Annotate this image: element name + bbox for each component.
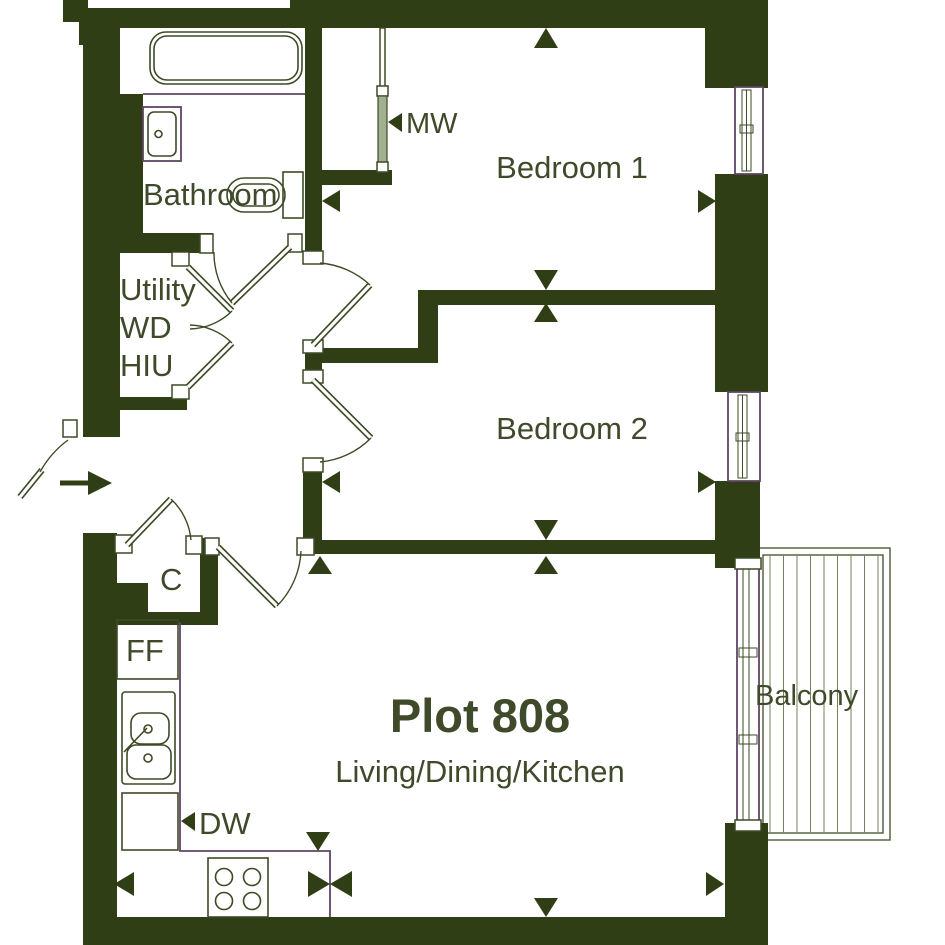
cupboard-label: C [160, 562, 182, 597]
wall-bedroom2-alcove-top [322, 348, 438, 363]
balcony-door-top-cap [735, 558, 761, 569]
floorplan: Bathroom Utility WD HIU MW Bedroom 1 Bed… [0, 0, 945, 945]
utility-wd-label: WD [120, 310, 172, 345]
wall-bathroom-duct [120, 94, 143, 240]
bathtub-icon [150, 32, 302, 84]
wall-bottom [83, 917, 768, 945]
fridge-freezer-label: FF [126, 633, 164, 668]
utility-hiu-label: HIU [120, 348, 173, 383]
arrow-down-icon [534, 270, 558, 290]
balcony-label: Balcony [755, 680, 859, 712]
wall-bedroom-divider [418, 290, 716, 305]
wall-hall-lower [303, 471, 322, 541]
arrow-right-icon [698, 190, 716, 213]
hob-icon [208, 858, 268, 917]
plot-title: Plot 808 [390, 689, 570, 742]
wall-left-upper [83, 8, 120, 437]
sink-icon [122, 692, 175, 784]
arrow-up-icon [534, 28, 558, 48]
balcony-door-bottom-cap [735, 820, 761, 831]
arrow-left-icon [322, 190, 340, 212]
wall-hall-stub [305, 351, 322, 372]
arrow-down-icon [534, 520, 558, 540]
entrance-door [20, 440, 68, 497]
arrow-up-icon [534, 303, 558, 322]
arrow-up-icon [534, 556, 558, 574]
wall-right-top-block [705, 0, 768, 88]
arrow-left-icon [330, 871, 352, 897]
living-label: Living/Dining/Kitchen [335, 754, 625, 789]
cupboard-door [127, 499, 191, 545]
bedroom1-door [313, 263, 370, 345]
utility-label: Utility [120, 272, 196, 307]
arrow-right-icon [698, 471, 716, 493]
kitchen-counter-line [180, 622, 330, 917]
bedroom2-door [313, 380, 371, 462]
wall-bedroom2-bottom [300, 540, 723, 554]
washbasin-icon [143, 107, 181, 161]
wall-bathroom-utility-divider [110, 233, 213, 253]
bathroom-door [214, 247, 290, 303]
dishwasher-unit [122, 793, 178, 850]
living-room-door [218, 547, 301, 606]
entrance-jamb [63, 420, 77, 437]
dw-pointer-icon [181, 812, 195, 831]
arrow-right-icon [706, 872, 724, 896]
wall-left-lower [83, 533, 117, 917]
bedroom1-window [735, 87, 763, 174]
utility-door-bottom [188, 325, 232, 387]
wall-right-mid-block2 [715, 481, 760, 568]
arrow-down-icon [306, 832, 330, 851]
dishwasher-label: DW [199, 806, 251, 841]
wall-top-right [290, 0, 730, 28]
arrow-left-icon [322, 471, 340, 493]
bedroom2-window [728, 392, 760, 481]
arrow-right-icon [308, 871, 330, 897]
wall-bathroom-right [305, 25, 322, 253]
bathroom-label: Bathroom [143, 177, 277, 212]
bedroom2-label: Bedroom 2 [496, 411, 648, 446]
mw-pointer-icon [388, 113, 402, 132]
arrow-down-icon [534, 898, 558, 917]
arrow-up-icon [308, 556, 332, 574]
mw-partition [377, 28, 388, 172]
wall-right-mid-block [715, 174, 768, 392]
wall-cupboard-step [117, 583, 148, 613]
microwave-label: MW [406, 108, 458, 140]
bedroom1-label: Bedroom 1 [496, 150, 648, 185]
entrance-arrow-icon [60, 471, 112, 495]
